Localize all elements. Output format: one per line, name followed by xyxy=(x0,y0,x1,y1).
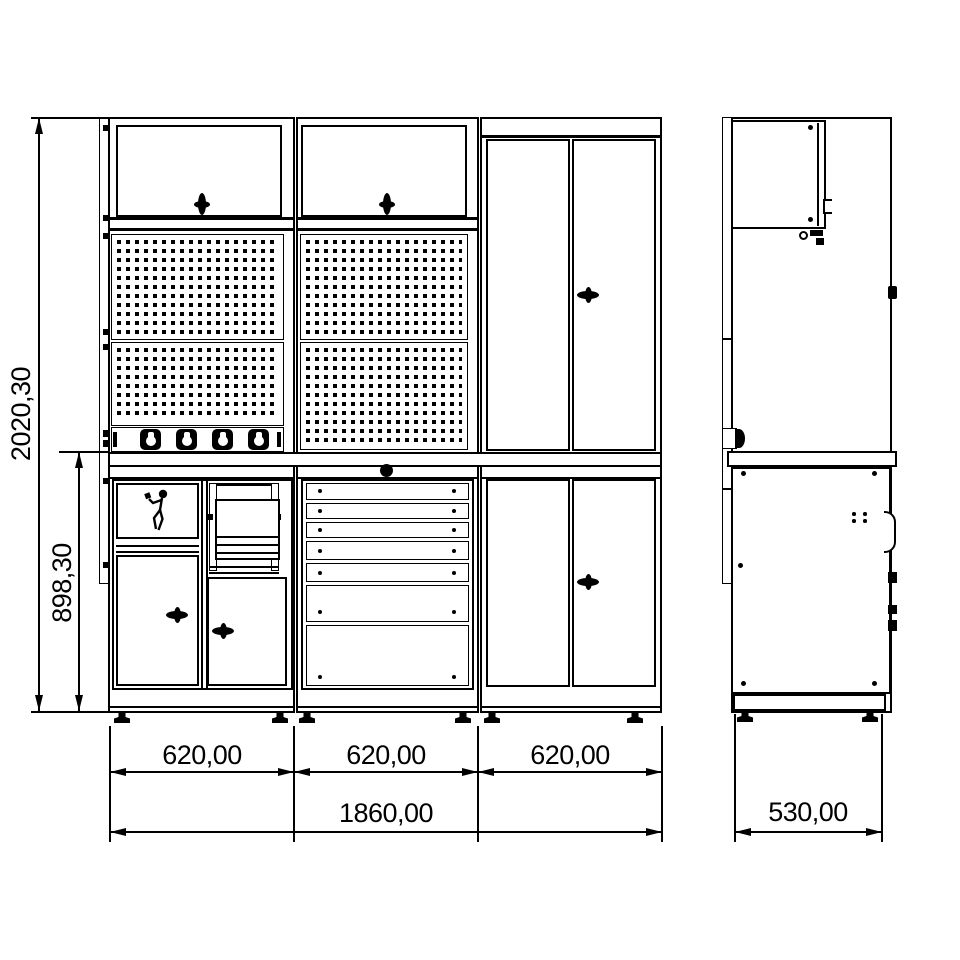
paper-towel-holder xyxy=(215,499,280,560)
mount-hole xyxy=(863,519,867,523)
panel-screw xyxy=(872,681,877,686)
dimension-label-module-3: 620,00 xyxy=(510,741,630,769)
drawer-screw xyxy=(318,571,322,575)
dimension-arrow xyxy=(646,768,662,776)
drawer xyxy=(306,522,469,538)
side-wall-cabinet xyxy=(731,120,826,229)
mount-hole xyxy=(852,512,856,516)
leveling-foot xyxy=(299,713,315,723)
drawer-screw xyxy=(452,610,456,614)
dimension-arrow xyxy=(35,695,43,711)
tall-cabinet-header xyxy=(482,135,660,138)
holder-slat xyxy=(217,552,278,554)
drawer-screw xyxy=(452,571,456,575)
dimension-label-total-width: 1860,00 xyxy=(306,799,466,827)
pegboard-holes xyxy=(306,240,462,334)
power-socket-icon xyxy=(140,429,161,450)
dimension-arrow xyxy=(646,828,662,836)
leveling-foot xyxy=(737,712,753,722)
cabinet-rail xyxy=(116,545,199,547)
wall-cabinet-rail xyxy=(298,217,477,220)
tall-cabinet-upper-door-left xyxy=(486,139,570,451)
drawer xyxy=(306,541,469,560)
dimension-arrow xyxy=(735,828,751,836)
plinth xyxy=(110,706,293,708)
dimension-arrow xyxy=(35,118,43,134)
drawer xyxy=(306,585,469,622)
holder-slat xyxy=(217,536,278,538)
drawer-screw xyxy=(318,489,322,493)
panel-screw xyxy=(741,681,746,686)
door-handle-icon xyxy=(379,193,395,215)
drawer-screw xyxy=(452,528,456,532)
wall-cabinet-rail xyxy=(298,228,477,231)
dimension-arrow xyxy=(278,768,294,776)
side-worktop xyxy=(727,451,897,467)
dimension-arrow xyxy=(478,768,494,776)
door-handle-profile xyxy=(884,511,896,553)
door-handle-icon xyxy=(212,623,234,639)
tidyman-icon xyxy=(144,488,174,532)
pegboard-panel xyxy=(111,234,284,340)
hinge-detail xyxy=(810,230,823,236)
wall-cabinet-rail xyxy=(110,217,293,220)
hinge-detail xyxy=(816,238,824,245)
mount-hole xyxy=(852,519,856,523)
panel-screw xyxy=(872,471,877,476)
holder-rail xyxy=(209,566,279,568)
dimension-label-overall-height: 2020,30 xyxy=(7,354,35,474)
door-latch xyxy=(823,199,832,214)
leveling-foot xyxy=(627,713,643,723)
door-handle-icon xyxy=(166,607,188,623)
pegboard-panel xyxy=(111,342,284,426)
leveling-foot xyxy=(455,713,471,723)
extension-line xyxy=(31,711,108,713)
drawer-screw xyxy=(452,489,456,493)
leveling-foot xyxy=(862,712,878,722)
extension-line xyxy=(293,726,295,842)
cabinet-post xyxy=(201,481,203,688)
pegboard-holes xyxy=(306,348,462,444)
drawer-screw xyxy=(452,509,456,513)
power-socket-icon xyxy=(248,429,269,450)
side-door-edge xyxy=(817,123,819,226)
dimension-line-bench-height xyxy=(78,452,80,711)
door-handle-icon xyxy=(577,287,599,303)
panel-screw xyxy=(738,563,743,568)
power-socket-icon xyxy=(176,429,197,450)
holder-rail xyxy=(209,572,279,574)
hinge-screw xyxy=(808,125,813,130)
socket-strip-bracket xyxy=(277,432,281,447)
drawer-screw xyxy=(452,675,456,679)
plinth xyxy=(482,706,660,708)
extension-line xyxy=(109,726,111,842)
cabinet-rail xyxy=(116,551,199,553)
plinth xyxy=(298,706,477,708)
door-handle-icon xyxy=(577,574,599,590)
door-handle-icon xyxy=(194,193,210,215)
leveling-foot xyxy=(114,713,130,723)
holder-slat xyxy=(217,544,278,546)
extension-line xyxy=(31,117,108,119)
pegboard-panel xyxy=(300,342,468,450)
hinge-detail xyxy=(799,231,808,240)
extension-line xyxy=(59,451,108,453)
dimension-arrow xyxy=(110,828,126,836)
drawer-screw xyxy=(318,675,322,679)
power-socket-icon xyxy=(212,429,233,450)
dimension-line-total-width xyxy=(110,831,662,833)
drawer xyxy=(306,625,469,686)
drawer-screw xyxy=(318,610,322,614)
wall-cabinet-rail xyxy=(110,228,293,231)
side-hinge-tab xyxy=(888,620,897,631)
dimension-arrow xyxy=(294,768,310,776)
grommet-icon xyxy=(380,464,393,477)
technical-drawing-canvas: 2020,30 898,30 620,00 620,00 620,00 1860… xyxy=(0,0,960,960)
leveling-foot xyxy=(272,713,288,723)
mount-hole xyxy=(863,512,867,516)
dimension-label-bench-height: 898,30 xyxy=(48,533,76,633)
hinge-screw xyxy=(808,217,813,222)
holder-rail xyxy=(209,483,279,486)
dimension-arrow xyxy=(75,695,83,711)
holder-pin xyxy=(207,514,213,520)
dimension-arrow xyxy=(866,828,882,836)
drawer-screw xyxy=(318,509,322,513)
pegboard-panel xyxy=(300,234,468,340)
pegboard-holes xyxy=(117,348,278,420)
side-hinge-tab xyxy=(888,605,897,614)
side-plinth xyxy=(733,694,886,711)
drawer-screw xyxy=(318,528,322,532)
door-handle-icon xyxy=(888,286,897,299)
dimension-label-module-2: 620,00 xyxy=(326,741,446,769)
drawer-screw xyxy=(318,549,322,553)
dimension-label-module-1: 620,00 xyxy=(142,741,262,769)
dimension-arrow xyxy=(75,452,83,468)
tall-cabinet-lower-door-left xyxy=(486,479,570,687)
socket-strip-bracket xyxy=(113,432,117,447)
dimension-arrow xyxy=(462,768,478,776)
dimension-label-depth: 530,00 xyxy=(728,798,888,826)
drawer xyxy=(306,503,469,519)
dimension-line-height xyxy=(38,118,40,711)
side-base-cabinet xyxy=(731,467,891,694)
dimension-arrow xyxy=(110,768,126,776)
leveling-foot xyxy=(484,713,500,723)
drawer xyxy=(306,483,469,500)
panel-screw xyxy=(741,471,746,476)
dimension-line-modules xyxy=(110,771,662,773)
drawer xyxy=(306,563,469,582)
dimension-line-depth xyxy=(735,831,882,833)
pegboard-holes xyxy=(117,240,278,334)
side-hinge-tab xyxy=(888,572,897,583)
extension-line xyxy=(477,726,479,842)
extension-line xyxy=(661,726,663,842)
drawer-screw xyxy=(452,549,456,553)
